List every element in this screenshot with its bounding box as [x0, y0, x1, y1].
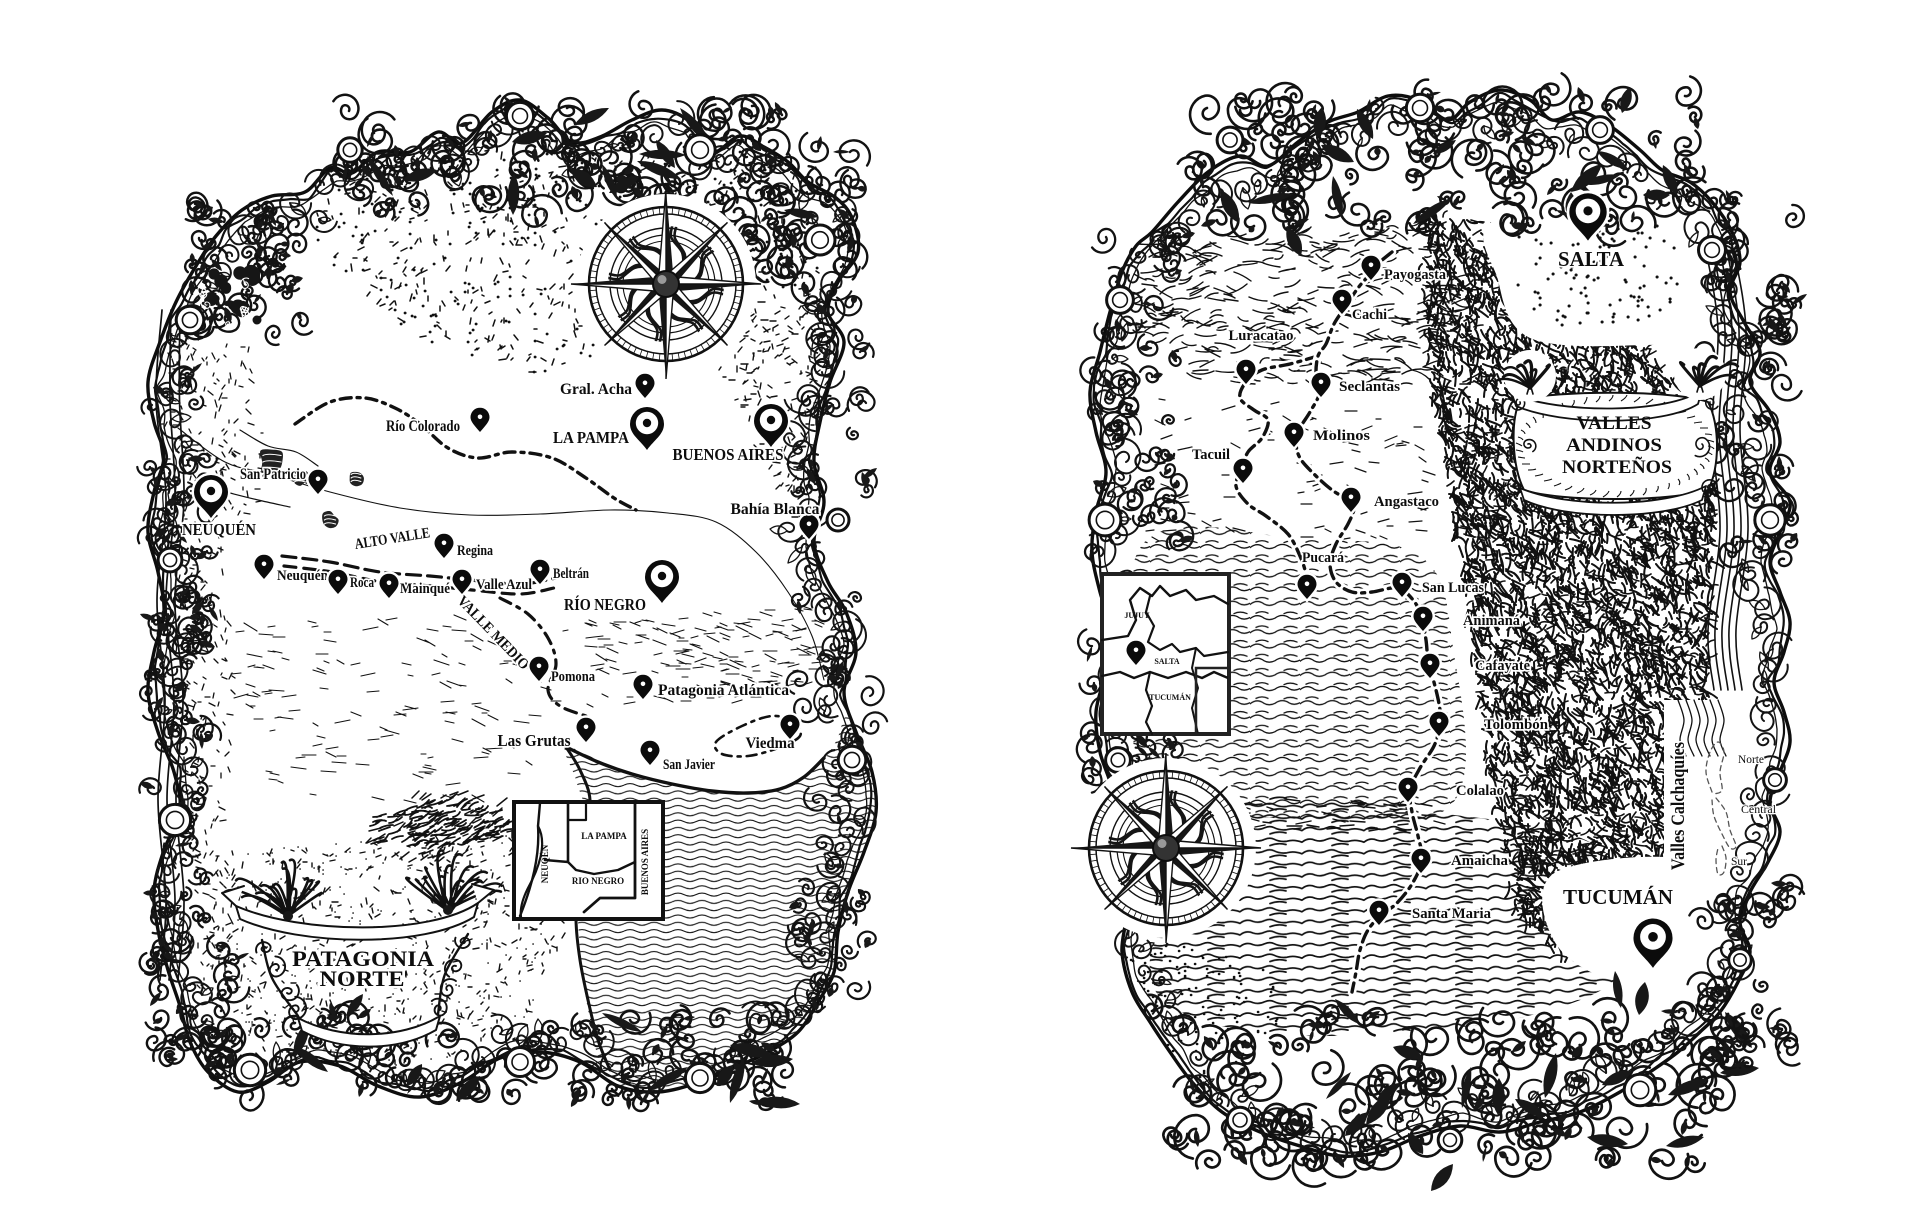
svg-text:Patagonia Atlántica: Patagonia Atlántica — [658, 682, 789, 699]
svg-text:Cafayate: Cafayate — [1475, 658, 1530, 674]
svg-text:NEUQUÉN: NEUQUÉN — [182, 520, 257, 539]
svg-text:RIO NEGRO: RIO NEGRO — [572, 876, 624, 886]
svg-text:NEUQÉN: NEUQÉN — [540, 844, 550, 883]
svg-text:Animaná: Animaná — [1463, 613, 1520, 629]
svg-text:Las Grutas: Las Grutas — [498, 731, 571, 750]
svg-text:Central: Central — [1741, 802, 1777, 816]
svg-text:Luracatao: Luracatao — [1229, 328, 1294, 344]
svg-text:BUENOS AIRES: BUENOS AIRES — [640, 829, 650, 895]
svg-text:TUCUMÁN: TUCUMÁN — [1149, 692, 1191, 702]
svg-text:Pucará: Pucará — [1302, 550, 1344, 566]
svg-text:Sur: Sur — [1731, 854, 1747, 868]
svg-text:LA PAMPA: LA PAMPA — [553, 428, 630, 447]
svg-text:Tacuil: Tacuil — [1192, 447, 1230, 463]
svg-text:Santa Maria: Santa Maria — [1412, 906, 1491, 922]
svg-text:San Javier: San Javier — [663, 757, 715, 773]
svg-text:San Patricio: San Patricio — [240, 466, 306, 483]
svg-text:NORTEÑOS: NORTEÑOS — [1562, 456, 1672, 478]
svg-text:Tolombón: Tolombón — [1484, 717, 1549, 733]
svg-text:Neuquén: Neuquén — [277, 568, 329, 584]
svg-text:TUCUMÁN: TUCUMÁN — [1563, 885, 1673, 909]
svg-text:Angastaco: Angastaco — [1374, 494, 1439, 510]
svg-text:Valles Calchaquíes: Valles Calchaquíes — [1668, 742, 1689, 870]
svg-text:LA PAMPA: LA PAMPA — [581, 831, 627, 841]
svg-text:Viedma: Viedma — [746, 735, 795, 752]
svg-text:SALTA: SALTA — [1154, 657, 1180, 666]
svg-text:RÍO NEGRO: RÍO NEGRO — [564, 595, 646, 614]
svg-text:Regina: Regina — [457, 543, 493, 559]
svg-text:San Lucas: San Lucas — [1422, 580, 1484, 596]
svg-text:VALLES: VALLES — [1577, 413, 1652, 434]
svg-text:Pomona: Pomona — [551, 669, 595, 685]
svg-text:Mainqué: Mainqué — [400, 581, 450, 597]
svg-text:Gral. Acha: Gral. Acha — [560, 381, 632, 398]
svg-text:Colalao: Colalao — [1456, 783, 1504, 799]
svg-text:NORTE: NORTE — [320, 966, 405, 991]
svg-text:Roca: Roca — [350, 575, 374, 591]
svg-text:Cachi: Cachi — [1352, 307, 1387, 323]
svg-text:JUJUY: JUJUY — [1124, 611, 1150, 620]
svg-text:Amaicha: Amaicha — [1451, 853, 1508, 869]
svg-text:Seclantas: Seclantas — [1339, 379, 1400, 395]
svg-text:BUENOS AIRES: BUENOS AIRES — [673, 445, 784, 464]
svg-text:Beltrán: Beltrán — [553, 566, 589, 582]
svg-text:ANDINOS: ANDINOS — [1566, 435, 1662, 456]
svg-text:Bahía Blanca: Bahía Blanca — [731, 501, 820, 518]
svg-text:Molinos: Molinos — [1313, 428, 1370, 444]
svg-text:Río Colorado: Río Colorado — [386, 418, 460, 435]
svg-text:Valle Azul: Valle Azul — [476, 577, 532, 593]
svg-text:Norte: Norte — [1738, 752, 1764, 766]
svg-text:SALTA: SALTA — [1558, 247, 1625, 271]
svg-text:Payogasta: Payogasta — [1384, 267, 1446, 283]
